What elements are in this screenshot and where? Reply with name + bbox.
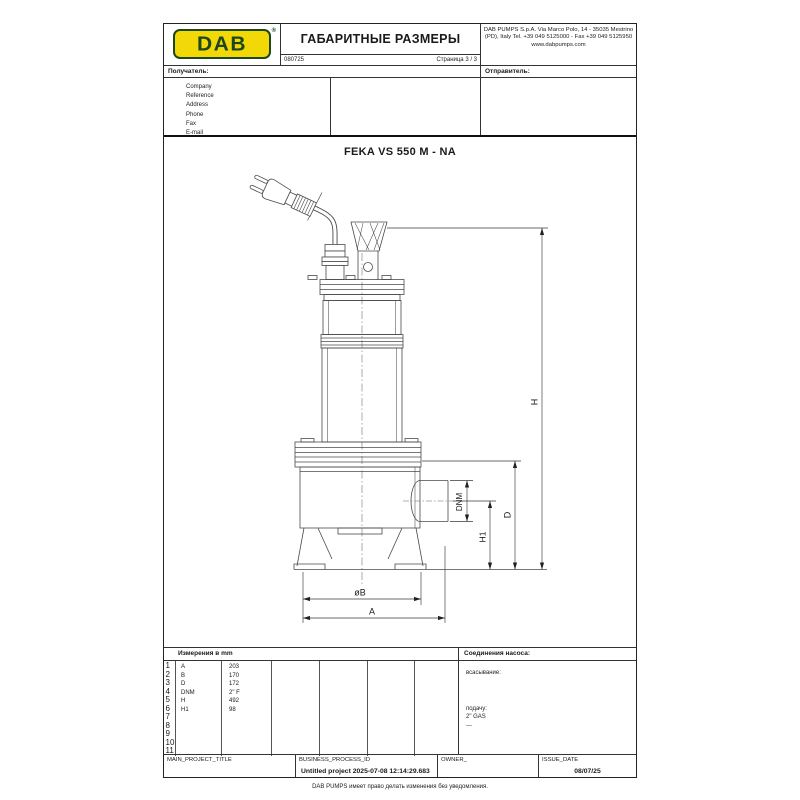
dim-label-h: H <box>530 399 540 406</box>
customer-values-area <box>331 78 481 135</box>
measurements-table: Измерения в mm 1 2 3 4 5 6 7 8 9 10 11 A… <box>164 648 459 754</box>
process-id-value: Untitled project 2025-07-08 12:14:29.683 <box>296 768 437 775</box>
row-numbers-column: 1 2 3 4 5 6 7 8 9 10 11 <box>164 661 176 756</box>
customer-info-section: Company Reference Address Phone Fax E-ma… <box>164 78 636 137</box>
owner-cell: OWNER_ <box>438 755 539 777</box>
connections-panel: Соединения насоса: всасывание: подачу: 2… <box>459 648 636 754</box>
header: DAB ® ГАБАРИТНЫЕ РАЗМЕРЫ 080725 Страница… <box>164 24 636 66</box>
title-subrow: 080725 Страница 3 / 3 <box>281 54 480 65</box>
connections-title: Соединения насоса: <box>459 648 636 661</box>
issue-date-value: 08/07/25 <box>539 768 636 775</box>
company-address: DAB PUMPS S.p.A. Via Marco Polo, 14 - 35… <box>481 24 636 65</box>
logo-cell: DAB ® <box>164 24 281 65</box>
issue-date-cell: ISSUE_DATE 08/07/25 <box>539 755 636 777</box>
dimension-value-column: 203 170 172 2" F 492 98 <box>222 661 272 756</box>
dim-label-d: D <box>503 511 513 518</box>
strainer-base <box>294 528 547 570</box>
dim-label-dnm: DNM <box>455 492 464 511</box>
power-plug-icon <box>248 172 318 219</box>
empty-column <box>320 661 368 756</box>
cable-gland <box>322 244 348 279</box>
delivery-label: подачу: <box>466 706 636 712</box>
dab-logo-text: DAB <box>197 34 247 54</box>
recipient-sender-row: Получатель: Отправитель: <box>164 66 636 78</box>
empty-column <box>272 661 320 756</box>
pump-dimensional-drawing: H D H1 DNM øB A <box>164 137 638 649</box>
page-indicator: Страница 3 / 3 <box>436 57 477 63</box>
delivery-value: 2" GAS <box>466 714 636 720</box>
dimension-labels: H D H1 DNM øB A <box>354 399 539 617</box>
document-frame: DAB ® ГАБАРИТНЫЕ РАЗМЕРЫ 080725 Страница… <box>163 23 637 778</box>
project-title-cell: MAIN_PROJECT_TITLE <box>164 755 296 777</box>
doc-number: 080725 <box>284 57 304 63</box>
dim-label-b: øB <box>354 587 366 597</box>
title-block-row: MAIN_PROJECT_TITLE BUSINESS_PROCESS_ID U… <box>164 754 636 777</box>
sender-values-area <box>481 78 636 135</box>
drawing-area: FEKA VS 550 M - NA <box>164 137 636 647</box>
dimension-name-column: A B D DNM H H1 <box>176 661 222 756</box>
page-title: ГАБАРИТНЫЕ РАЗМЕРЫ <box>281 24 480 54</box>
dab-logo: DAB ® <box>173 29 271 59</box>
customer-field-labels: Company Reference Address Phone Fax E-ma… <box>164 78 331 135</box>
title-cell: ГАБАРИТНЫЕ РАЗМЕРЫ 080725 Страница 3 / 3 <box>281 24 481 65</box>
sender-label: Отправитель: <box>481 66 636 77</box>
handle-rope <box>351 222 387 280</box>
connections-body: всасывание: подачу: 2" GAS --- <box>459 661 636 754</box>
process-id-cell: BUSINESS_PROCESS_ID Untitled project 202… <box>296 755 438 777</box>
empty-column <box>368 661 415 756</box>
empty-column <box>415 661 458 756</box>
delivery-note: --- <box>466 723 636 729</box>
datasheet-page: { "header": { "logo_text": "DAB", "logo_… <box>0 0 800 800</box>
process-id-label: BUSINESS_PROCESS_ID <box>299 757 370 763</box>
suction-label: всасывание: <box>466 670 636 676</box>
issue-date-label: ISSUE_DATE <box>542 757 578 763</box>
pump-body <box>295 275 421 528</box>
recipient-label: Получатель: <box>164 66 481 77</box>
dim-label-a: A <box>369 606 375 616</box>
measurements-title: Измерения в mm <box>164 648 458 661</box>
registered-mark-icon: ® <box>272 28 276 34</box>
measurements-section: Измерения в mm 1 2 3 4 5 6 7 8 9 10 11 A… <box>164 647 636 754</box>
owner-label: OWNER_ <box>441 757 467 763</box>
measurements-body: 1 2 3 4 5 6 7 8 9 10 11 A B D DNM H H1 2… <box>164 661 458 756</box>
handle-hole <box>364 262 373 271</box>
project-title-label: MAIN_PROJECT_TITLE <box>167 757 232 763</box>
disclaimer-text: DAB PUMPS имеет право делать изменения б… <box>0 784 800 790</box>
dim-label-h1: H1 <box>478 531 488 542</box>
